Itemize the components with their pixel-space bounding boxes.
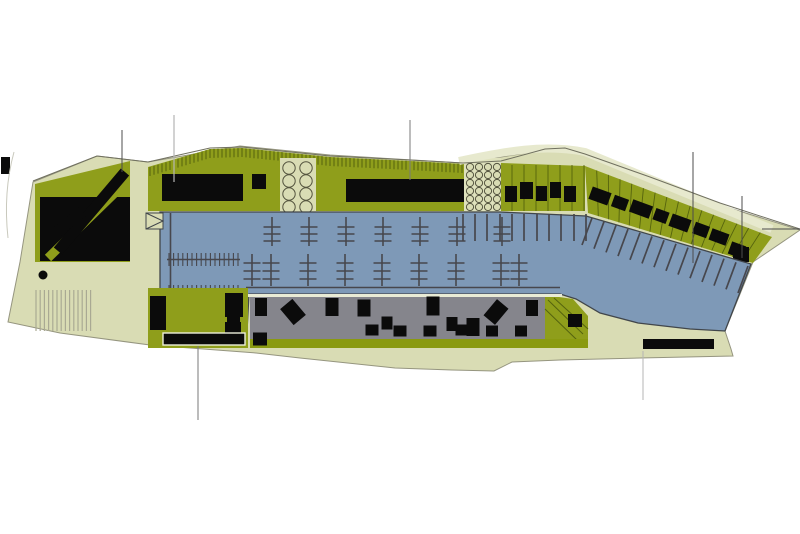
tree-icon bbox=[466, 171, 473, 178]
tree-icon bbox=[283, 162, 295, 174]
boat-rect bbox=[486, 326, 498, 337]
tree-icon bbox=[493, 203, 500, 210]
tree-icon bbox=[475, 195, 482, 202]
quay-building bbox=[163, 333, 245, 345]
site-marker-dot bbox=[39, 271, 48, 280]
tree-icon bbox=[466, 195, 473, 202]
boat-rect bbox=[358, 300, 371, 317]
tree-icon bbox=[484, 163, 491, 170]
boat-rect bbox=[526, 300, 538, 316]
tree-icon bbox=[300, 175, 312, 187]
building bbox=[227, 316, 240, 323]
tree-icon bbox=[493, 163, 500, 170]
tree-icon bbox=[493, 179, 500, 186]
tree-icon bbox=[300, 162, 312, 174]
tree-icon bbox=[484, 203, 491, 210]
tree-icon bbox=[475, 171, 482, 178]
tree-icon bbox=[484, 187, 491, 194]
tree-icon bbox=[475, 179, 482, 186]
tree-icon bbox=[283, 188, 295, 200]
building bbox=[252, 174, 266, 189]
building bbox=[536, 186, 547, 201]
tree-icon bbox=[484, 179, 491, 186]
tree-icon bbox=[493, 195, 500, 202]
tree-icon bbox=[475, 203, 482, 210]
yard-olive-strip bbox=[250, 339, 588, 348]
boat-lift-symbol bbox=[146, 213, 163, 229]
tree-icon bbox=[466, 203, 473, 210]
boat-rect bbox=[366, 325, 379, 336]
boat-rect bbox=[326, 298, 339, 316]
building bbox=[346, 179, 464, 202]
tree-icon bbox=[493, 171, 500, 178]
boat-rect bbox=[515, 326, 527, 337]
tree-icon bbox=[475, 163, 482, 170]
site-plan-canvas bbox=[0, 0, 800, 534]
building bbox=[568, 314, 582, 327]
tree-icon bbox=[493, 187, 500, 194]
boat-rect bbox=[424, 326, 437, 337]
edge-black-dash bbox=[1, 157, 10, 174]
building bbox=[564, 186, 576, 202]
tree-icon bbox=[484, 195, 491, 202]
building bbox=[150, 296, 166, 330]
tree-icon bbox=[484, 171, 491, 178]
tree-icon bbox=[466, 179, 473, 186]
tree-icon bbox=[283, 201, 295, 213]
boat-rect bbox=[255, 298, 267, 316]
boat-rect bbox=[394, 326, 407, 337]
quay-building bbox=[643, 339, 714, 349]
building bbox=[505, 186, 517, 202]
tree-icon bbox=[466, 163, 473, 170]
quay-building bbox=[253, 333, 267, 345]
tree-icon bbox=[475, 187, 482, 194]
tree-icon bbox=[300, 201, 312, 213]
tree-icon bbox=[466, 187, 473, 194]
site-plan-page bbox=[0, 0, 800, 534]
building bbox=[520, 182, 533, 199]
building bbox=[550, 182, 561, 198]
building bbox=[225, 293, 243, 317]
boat-rect bbox=[456, 325, 469, 336]
tree-icon bbox=[300, 188, 312, 200]
tree-icon bbox=[283, 175, 295, 187]
boat-rect bbox=[382, 317, 393, 330]
boat-rect bbox=[427, 297, 440, 316]
